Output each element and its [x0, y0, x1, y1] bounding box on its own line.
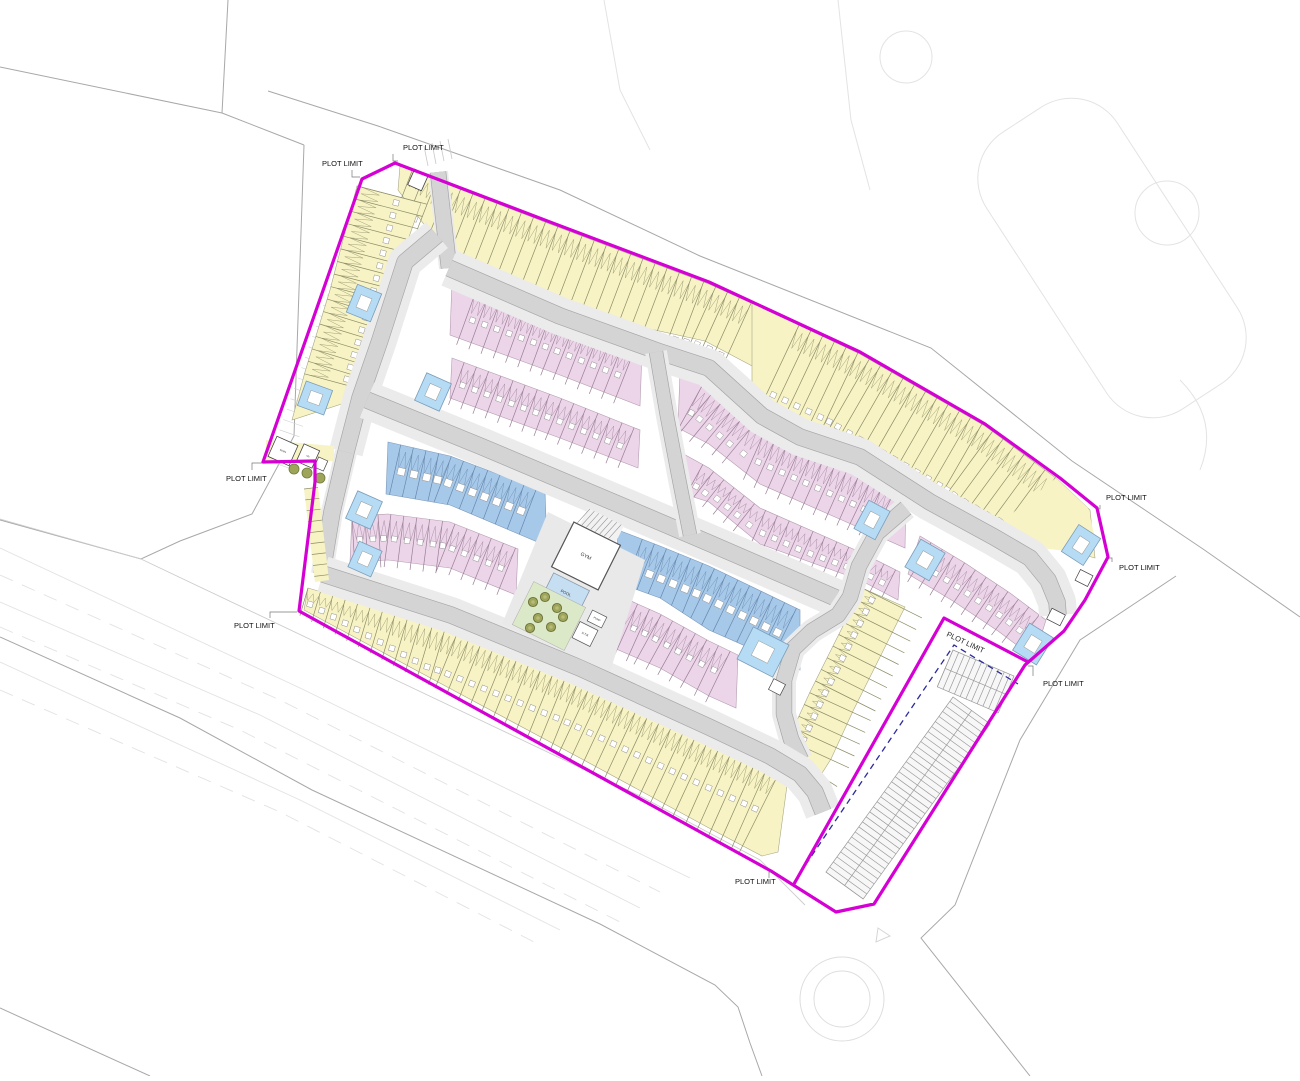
- svg-text:PLOT LIMIT: PLOT LIMIT: [1106, 493, 1147, 502]
- svg-text:PLOT LIMIT: PLOT LIMIT: [403, 143, 444, 152]
- svg-text:PLOT LIMIT: PLOT LIMIT: [226, 474, 267, 483]
- svg-text:PLOT LIMIT: PLOT LIMIT: [1043, 679, 1084, 688]
- svg-text:PLOT LIMIT: PLOT LIMIT: [1119, 563, 1160, 572]
- svg-text:PLOT LIMIT: PLOT LIMIT: [234, 621, 275, 630]
- svg-text:PLOT LIMIT: PLOT LIMIT: [735, 877, 776, 886]
- svg-text:PLOT LIMIT: PLOT LIMIT: [322, 159, 363, 168]
